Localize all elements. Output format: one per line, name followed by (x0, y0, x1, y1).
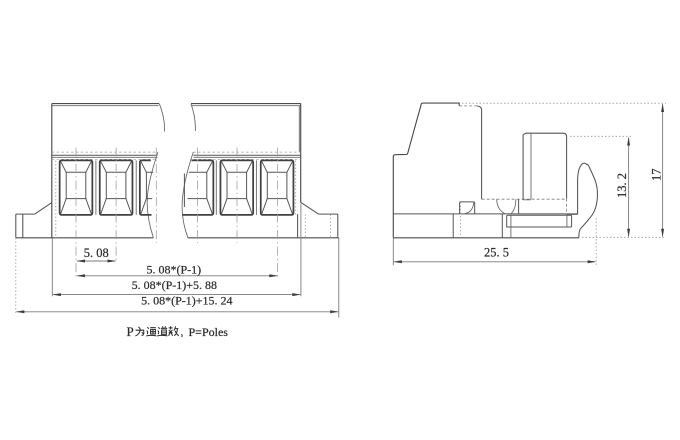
svg-text:P=Poles: P=Poles (189, 325, 229, 339)
svg-text:13. 2: 13. 2 (615, 173, 629, 198)
svg-text:5. 08*(P-1)+5. 88: 5. 08*(P-1)+5. 88 (132, 278, 217, 292)
svg-text:25. 5: 25. 5 (484, 246, 509, 260)
svg-text:5. 08: 5. 08 (84, 246, 109, 260)
svg-text:P: P (127, 324, 134, 339)
svg-text:5. 08*(P-1): 5. 08*(P-1) (146, 263, 201, 277)
svg-text:5. 08*(P-1)+15. 24: 5. 08*(P-1)+15. 24 (141, 293, 232, 307)
svg-text:17: 17 (649, 169, 663, 182)
